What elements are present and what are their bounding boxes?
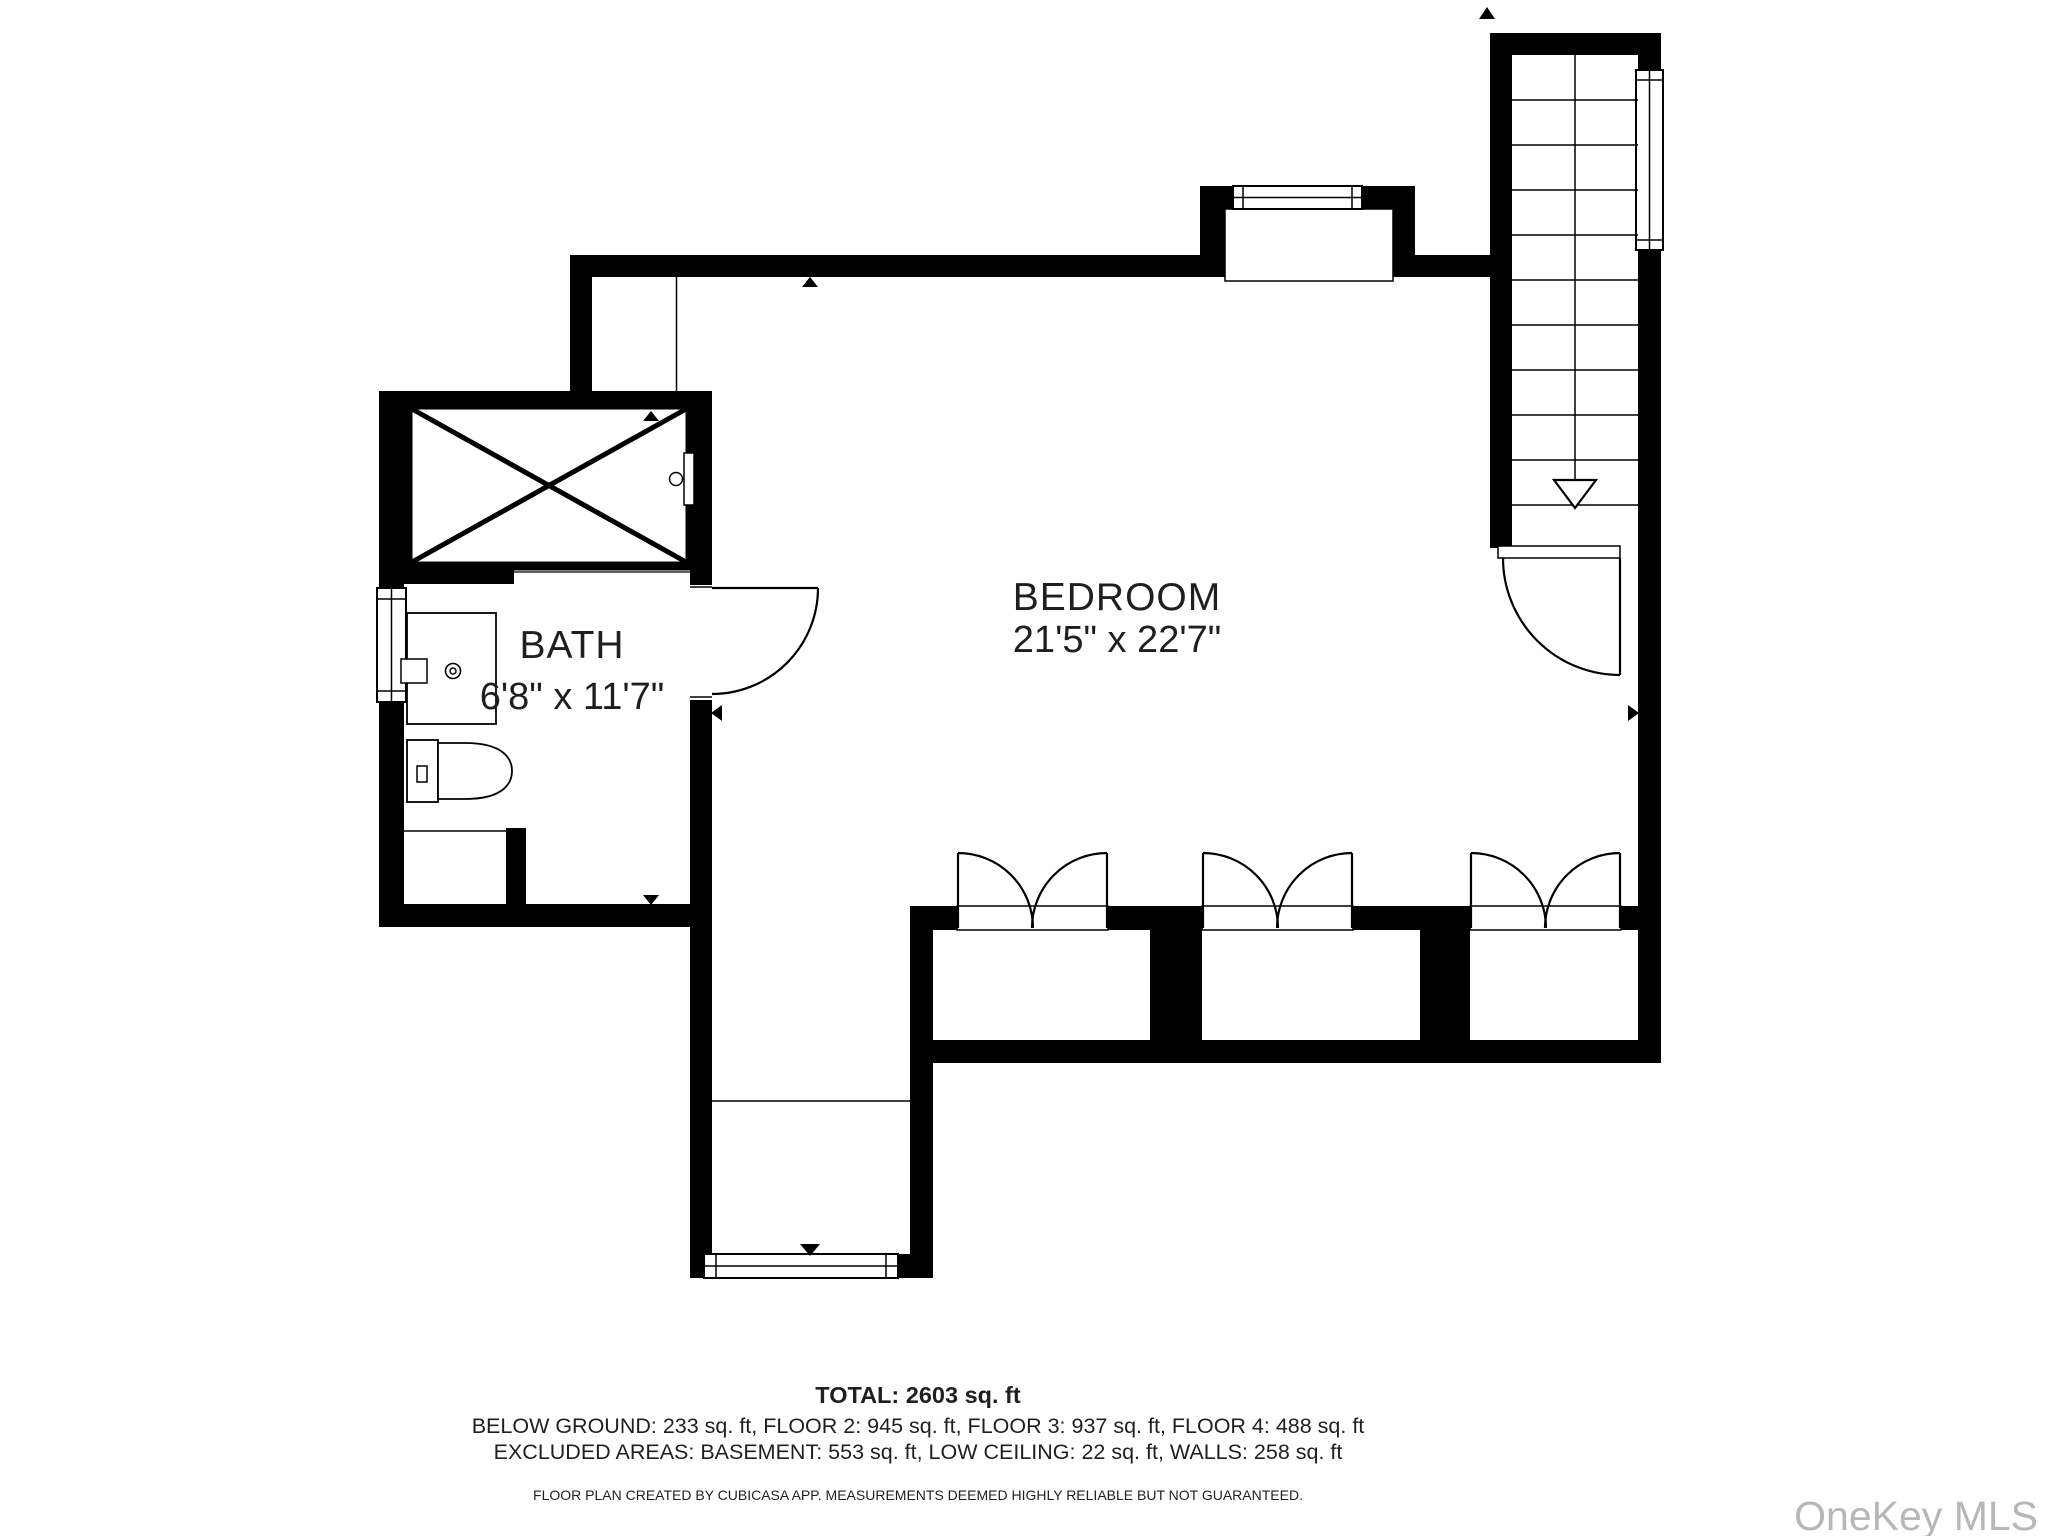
shower xyxy=(408,405,694,566)
marker-up-icon xyxy=(1479,7,1495,19)
stair-door-swing xyxy=(1503,558,1620,675)
wall-corridor-left xyxy=(690,927,712,1278)
floor-plan: BEDROOM 21'5" x 22'7" BATH 6'8" x 11'7" … xyxy=(0,0,2048,1536)
bedroom-label: BEDROOM xyxy=(1013,576,1222,619)
toilet-bowl xyxy=(438,743,512,799)
wall-left-upper xyxy=(570,255,592,412)
wall-closet-bottom xyxy=(910,1040,1661,1063)
openings xyxy=(690,209,1621,930)
window-top-bay xyxy=(1233,186,1362,209)
total-area-text: TOTAL: 2603 sq. ft xyxy=(815,1382,1021,1408)
wall-bath-bottom xyxy=(379,904,712,927)
wall-bath-alcove xyxy=(506,828,526,908)
wall-vestibule-stub xyxy=(897,1254,933,1278)
room-labels: BEDROOM 21'5" x 22'7" BATH 6'8" x 11'7" xyxy=(480,576,1221,718)
windows xyxy=(377,70,1663,1278)
bedroom-dimensions: 21'5" x 22'7" xyxy=(1013,619,1221,661)
floor-areas-text: BELOW GROUND: 233 sq. ft, FLOOR 2: 945 s… xyxy=(472,1414,1365,1438)
marker-up-icon xyxy=(802,277,818,287)
wall-closet-divider-1 xyxy=(1150,930,1202,1040)
excluded-areas-text: EXCLUDED AREAS: BASEMENT: 553 sq. ft, LO… xyxy=(494,1440,1343,1464)
wall-stair-left xyxy=(1490,33,1512,548)
stair-down-arrow-icon xyxy=(1554,480,1596,508)
marker-left-icon xyxy=(711,705,722,721)
toilet-button-icon xyxy=(417,766,427,782)
staircase xyxy=(1512,55,1638,508)
window-bay-recess xyxy=(1225,209,1393,281)
watermark: OneKey MLS xyxy=(1794,1493,2038,1536)
bath-door-swing xyxy=(712,588,818,694)
window-stair-right xyxy=(1636,70,1663,250)
floor-plan-page: BEDROOM 21'5" x 22'7" BATH 6'8" x 11'7" … xyxy=(0,0,2048,1536)
marker-down-icon xyxy=(643,895,659,905)
wall-bath-right-lower xyxy=(690,700,712,927)
sink-faucet-icon xyxy=(401,659,427,683)
toilet xyxy=(407,740,512,802)
wall-corridor-right xyxy=(910,930,933,1278)
wall-stair-top xyxy=(1490,33,1661,55)
stair-door-threshold xyxy=(1498,546,1620,558)
sink-drain-icon xyxy=(446,664,461,679)
window-vestibule-bottom xyxy=(704,1254,898,1278)
bath-dimensions: 6'8" x 11'7" xyxy=(480,676,664,718)
marker-right-icon xyxy=(1628,705,1639,721)
window-bath-left xyxy=(377,588,406,702)
disclaimer-text: FLOOR PLAN CREATED BY CUBICASA APP. MEAS… xyxy=(533,1487,1303,1503)
wall-closet-divider-2 xyxy=(1420,930,1470,1040)
bath-label: BATH xyxy=(519,624,624,667)
area-summary: TOTAL: 2603 sq. ft BELOW GROUND: 233 sq.… xyxy=(472,1382,1365,1503)
